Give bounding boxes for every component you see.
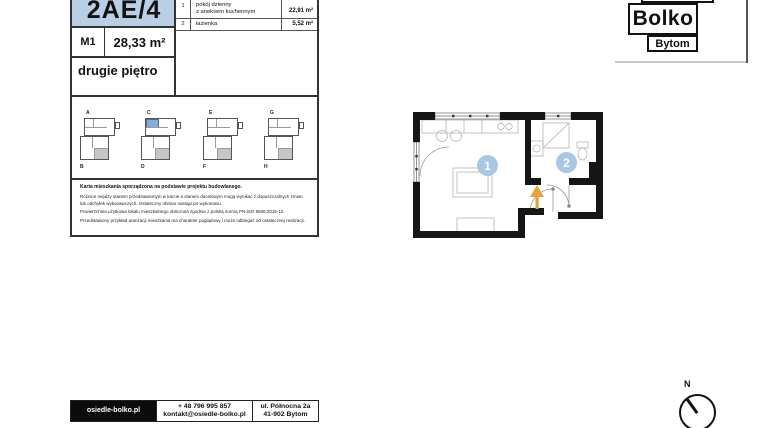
logo-city-box: Bytom bbox=[647, 35, 698, 52]
brand-city: Bytom bbox=[655, 38, 689, 50]
sink bbox=[498, 123, 504, 129]
thumbnail-shaded-area bbox=[155, 148, 169, 159]
room-area: 5,52 m² bbox=[277, 21, 313, 27]
door-hinge bbox=[567, 204, 571, 208]
thumbnail-shaded-area bbox=[278, 148, 292, 159]
room-name: łazienka bbox=[196, 21, 217, 28]
thumbnail-wall-line bbox=[208, 127, 230, 128]
toilet bbox=[577, 142, 588, 148]
address-line2: 41-902 Bytom bbox=[263, 411, 307, 419]
thumbnail-wall-line bbox=[269, 127, 291, 128]
building-thumbnail-cd: C D bbox=[140, 110, 184, 172]
contact-footer: osiedle-bolko.pl + 48 796 995 857 kontak… bbox=[70, 400, 319, 422]
door-hinge bbox=[551, 187, 555, 191]
building-thumbnail-gh: G H bbox=[263, 110, 307, 172]
thumbnail-label-top: E bbox=[209, 110, 212, 116]
contact-cell: + 48 796 995 857 kontakt@osiedle-bolko.p… bbox=[156, 401, 253, 421]
room-area: 22,91 m² bbox=[277, 8, 313, 14]
address-cell: ul. Północna 2a 41-902 Bytom bbox=[253, 401, 318, 421]
website-cell: osiedle-bolko.pl bbox=[71, 401, 156, 421]
room-table-divider bbox=[190, 0, 191, 31]
entrance-arrow bbox=[530, 185, 544, 209]
kitchen-counter bbox=[422, 120, 518, 133]
thumbnail-wall-line bbox=[85, 127, 107, 128]
thumbnail-balcony bbox=[299, 122, 304, 129]
phone: + 48 796 995 857 bbox=[178, 403, 231, 411]
apartment-card-sheet: 2AE/4 M1 28,33 m² drugie piętro 1 pokój … bbox=[0, 0, 760, 428]
unit-info-card: 2AE/4 M1 28,33 m² drugie piętro 1 pokój … bbox=[70, 0, 319, 237]
disclaimer-title: Karta mieszkania sporządzona na podstawi… bbox=[80, 184, 312, 190]
sink bbox=[506, 123, 512, 129]
sheet-edge-line bbox=[746, 0, 748, 63]
thumbnail-label-top: A bbox=[86, 110, 90, 116]
card-column-divider bbox=[174, 0, 176, 95]
thumbnail-label-bottom: D bbox=[141, 164, 145, 170]
thumbnail-balcony bbox=[238, 122, 243, 129]
thumbnail-wall-line bbox=[276, 137, 277, 148]
thumbnail-shaded-area bbox=[217, 148, 231, 159]
unit-number: 2AE/4 bbox=[87, 0, 161, 25]
balcony-door-swing bbox=[420, 147, 449, 176]
thumbnail-label-top: C bbox=[147, 110, 151, 116]
room-badge-1: 1 bbox=[477, 155, 498, 176]
card-separator bbox=[72, 178, 317, 180]
disclaimer-line: Przedstawiony przykład aranżacji mieszka… bbox=[80, 218, 312, 224]
floor-label: drugie piętro bbox=[72, 58, 174, 95]
stool bbox=[451, 131, 462, 142]
north-label: N bbox=[684, 379, 691, 389]
room-number: 1 bbox=[176, 3, 190, 9]
building-thumbnail-ab: A B bbox=[79, 110, 123, 172]
thumbnail-balcony bbox=[176, 122, 181, 129]
thumbnail-label-bottom: B bbox=[80, 164, 84, 170]
thumbnail-wall-line bbox=[92, 137, 93, 148]
thumbnail-label-bottom: F bbox=[203, 164, 206, 170]
thumbnail-wall-line bbox=[146, 127, 168, 128]
brand-name: Bolko bbox=[633, 7, 694, 31]
address-line1: ul. Północna 2a bbox=[261, 403, 311, 411]
building-thumbnail-ef: E F bbox=[202, 110, 246, 172]
floor-plan bbox=[413, 112, 603, 238]
bath-door-swing bbox=[547, 185, 569, 207]
thumbnail-wall-line bbox=[153, 137, 154, 148]
disclaimer-line: Powierzchnia użytkowa lokalu mieszkalneg… bbox=[80, 209, 312, 215]
thumbnail-shaded-area bbox=[94, 148, 108, 159]
email: kontakt@osiedle-bolko.pl bbox=[163, 411, 246, 419]
thumbnail-balcony bbox=[115, 122, 120, 129]
room-table-row-line bbox=[176, 30, 317, 31]
unit-number-header: 2AE/4 bbox=[72, 0, 176, 28]
room-table-row-line bbox=[176, 18, 317, 19]
card-separator bbox=[72, 95, 317, 97]
thumbnail-label-bottom: H bbox=[264, 164, 268, 170]
room-number: 2 bbox=[176, 21, 190, 27]
disclaimer: Karta mieszkania sporządzona na podstawi… bbox=[80, 184, 312, 226]
logo-brand-box: Bolko bbox=[628, 3, 698, 35]
washer bbox=[530, 141, 543, 156]
website: osiedle-bolko.pl bbox=[87, 407, 140, 415]
disclaimer-line: Różnice między stanem przedstawionym w k… bbox=[80, 194, 312, 200]
doors bbox=[420, 147, 571, 212]
stool bbox=[437, 131, 448, 142]
disclaimer-line: lub odchyłek wykonawczych. Ostateczny ob… bbox=[80, 201, 312, 207]
thumbnail-label-top: G bbox=[270, 110, 274, 116]
total-area-cell: 28,33 m² bbox=[105, 28, 174, 58]
thumbnail-wall-line bbox=[215, 137, 216, 148]
room-badge-2: 2 bbox=[556, 152, 577, 173]
room-name: pokój dzienny z aneksem kuchennym bbox=[196, 2, 255, 16]
logo-divider-line bbox=[615, 61, 748, 63]
unit-code-cell: M1 bbox=[72, 28, 105, 58]
